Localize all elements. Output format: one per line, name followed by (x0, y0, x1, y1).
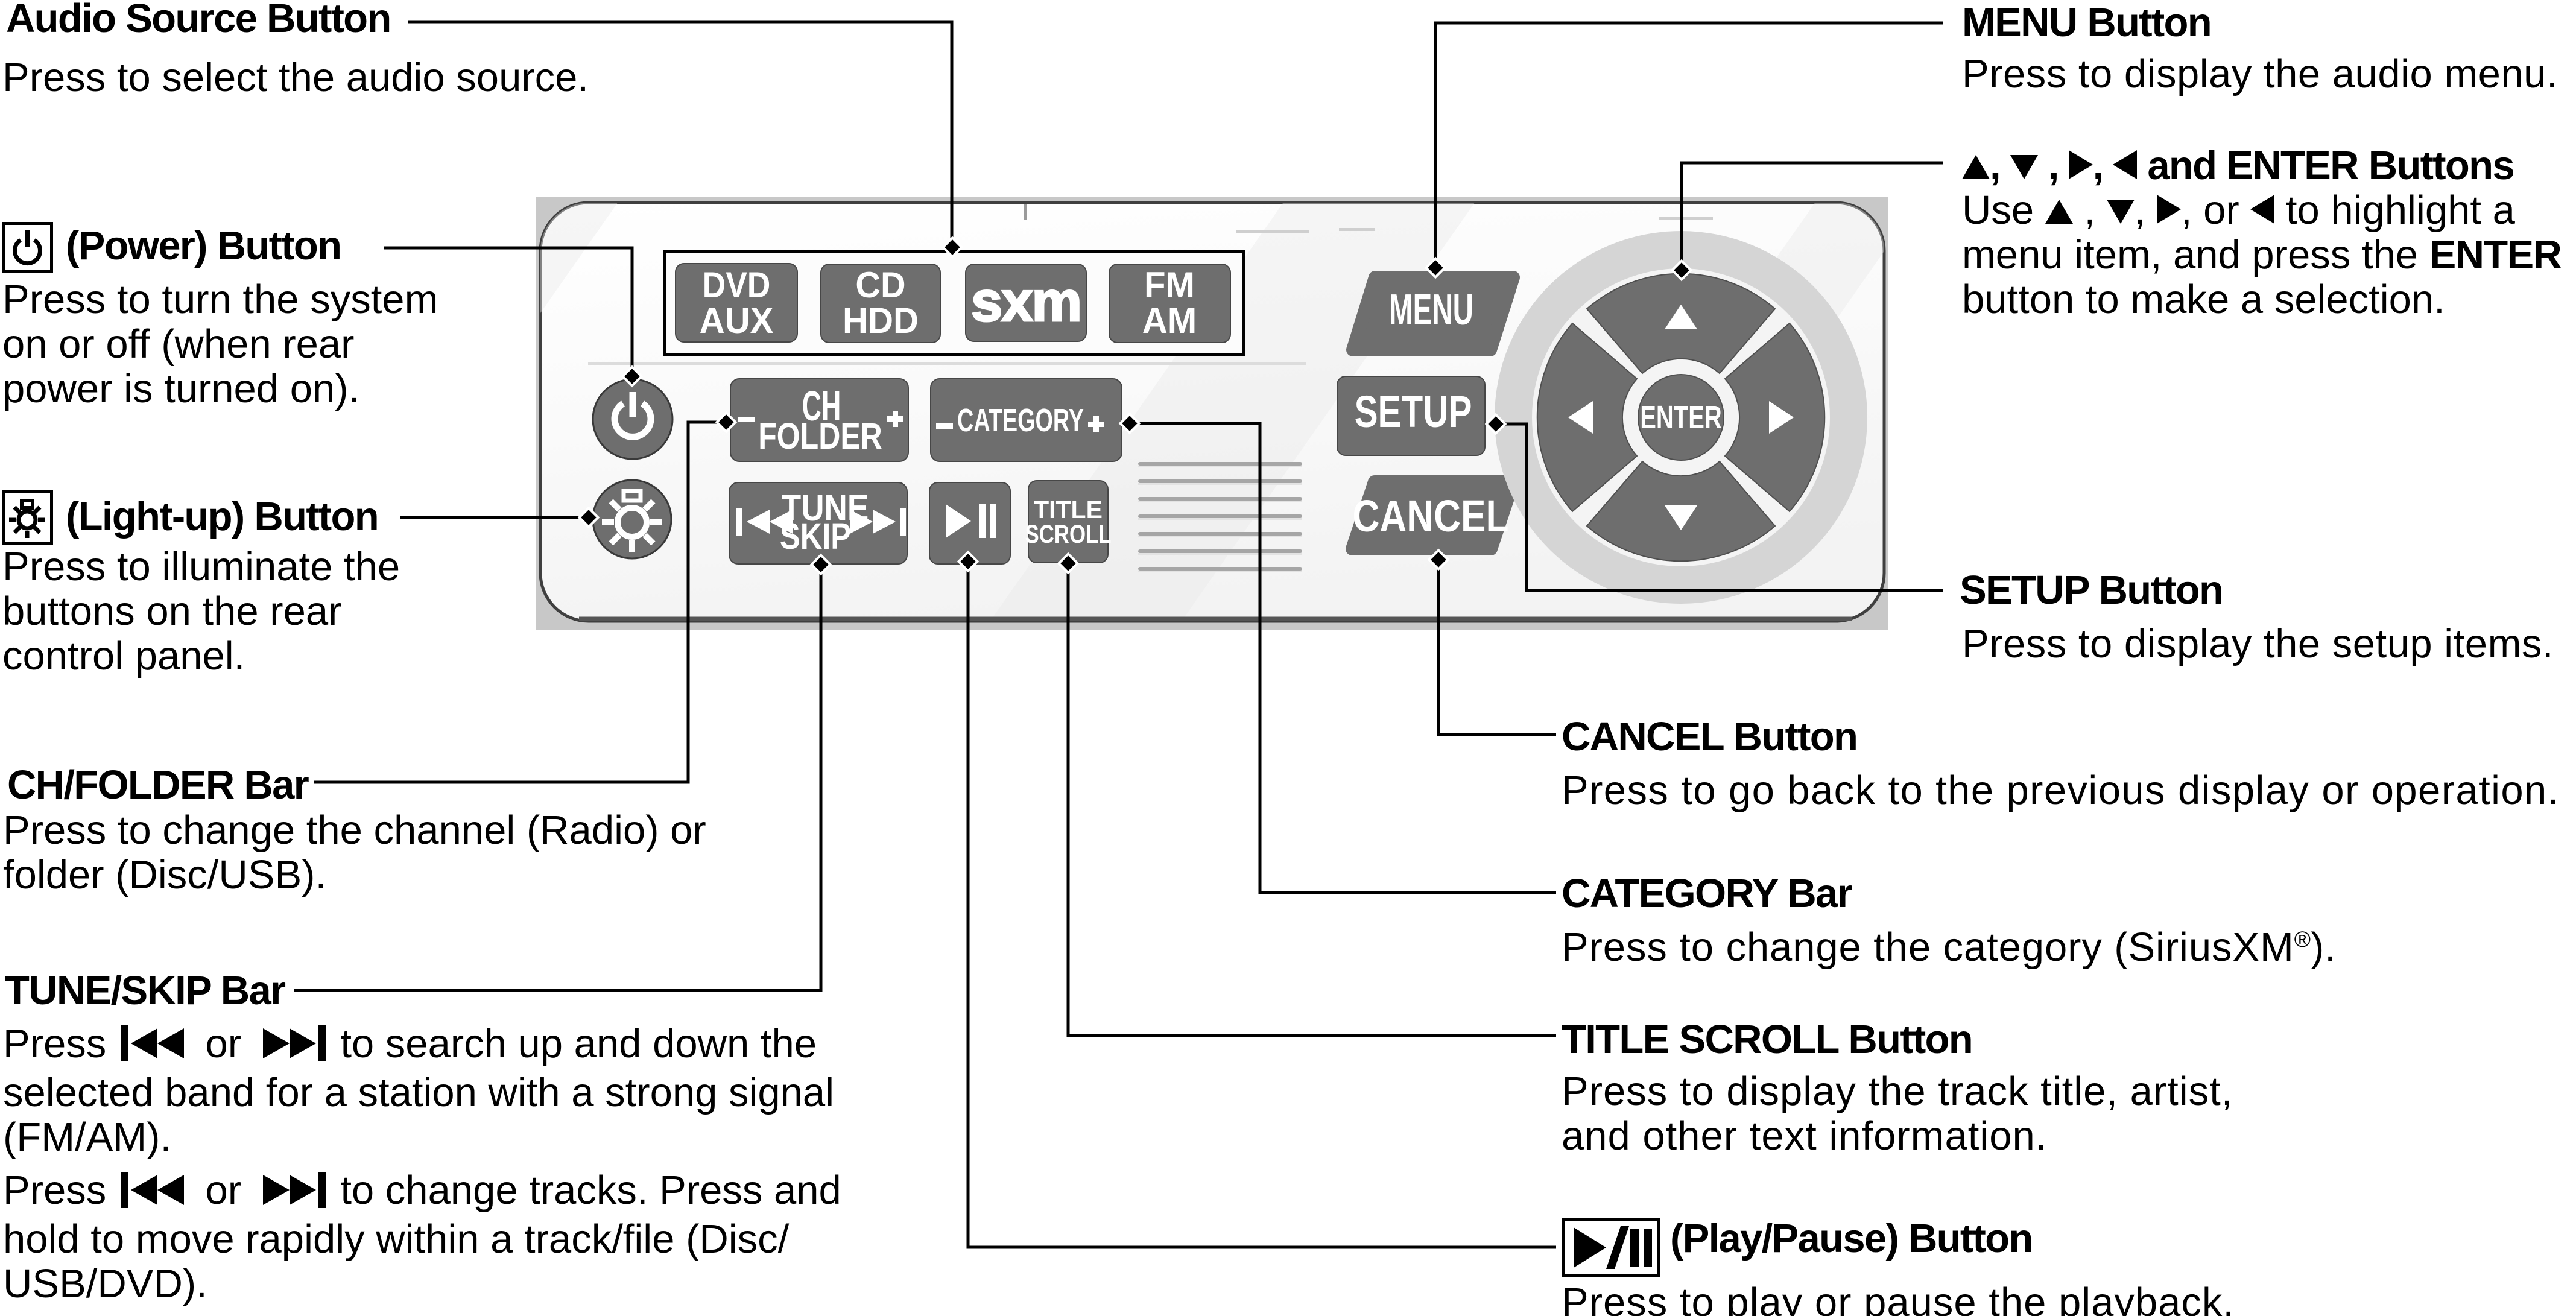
svg-text:SCROLL: SCROLL (1025, 520, 1111, 549)
svg-text:CATEGORY: CATEGORY (957, 402, 1084, 438)
svg-text:FOLDER: FOLDER (758, 416, 882, 457)
svg-text:MENU: MENU (1389, 285, 1473, 334)
svg-text:AM: AM (1142, 300, 1197, 341)
svg-text:TITLE: TITLE (1034, 496, 1103, 524)
svg-text:AUX: AUX (700, 300, 774, 341)
svg-text:sxm: sxm (971, 270, 1081, 333)
svg-text:CANCEL: CANCEL (1353, 492, 1509, 541)
svg-text:FM: FM (1144, 264, 1195, 305)
svg-text:HDD: HDD (843, 300, 919, 341)
svg-text:SETUP: SETUP (1355, 388, 1472, 437)
svg-text:ENTER: ENTER (1640, 399, 1721, 435)
